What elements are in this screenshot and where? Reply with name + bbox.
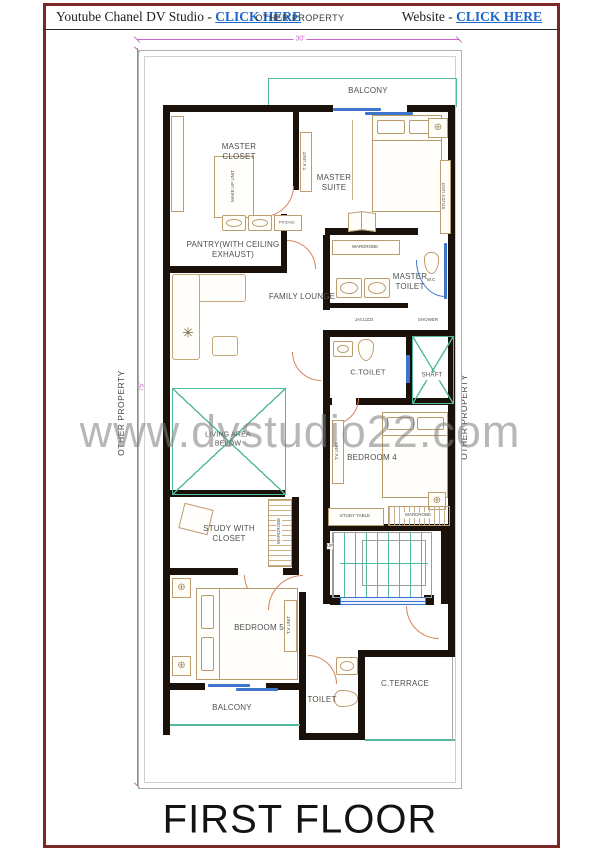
bathroom-sink — [364, 278, 390, 298]
wall — [163, 266, 287, 273]
wall — [323, 398, 332, 405]
closet-counter — [171, 116, 184, 212]
jacuzzi-label: JACUZZI — [355, 317, 374, 323]
wall — [292, 497, 299, 575]
plant-icon: ✳ — [182, 325, 194, 342]
floor-plan-page: Youtube Chanel DV Studio - CLICK HERE OT… — [0, 0, 600, 849]
sheet-title: FIRST FLOOR — [163, 798, 438, 843]
website-line: Website - CLICK HERE — [402, 9, 542, 25]
wall — [293, 112, 299, 190]
wall — [441, 526, 448, 604]
wall — [163, 683, 205, 690]
bathroom-sink — [336, 278, 362, 298]
ceiling-fan-icon: ⊕ — [172, 578, 191, 598]
wall — [330, 303, 408, 308]
wall — [299, 655, 306, 740]
room-label-pantry: PANTRY(WITH CEILING EXHAUST) — [177, 240, 289, 260]
shower-partition — [444, 243, 447, 299]
coffee-table — [212, 336, 238, 356]
youtube-label: Youtube Chanel DV Studio - — [56, 9, 212, 24]
shaft-hatch — [412, 336, 454, 404]
ceiling-fan-icon: ⊕ — [172, 656, 191, 676]
open-book-icon — [361, 211, 376, 232]
other-property-top-label: OTHER PROPERTY — [256, 13, 345, 23]
sliding-door-top — [333, 108, 381, 111]
stair-up-label: UP — [327, 543, 333, 549]
room-label-bedroom5: BEDROOM 5 — [233, 623, 285, 633]
shower-label: SHOWER — [418, 317, 438, 323]
wardrobe-label: WARDROBE — [404, 512, 432, 518]
terrace-edge — [365, 739, 455, 741]
wall — [299, 733, 365, 740]
ceiling-fan-icon: ⊕ — [428, 118, 448, 138]
wall — [358, 650, 455, 657]
top-dimension-value: 30' — [293, 36, 306, 43]
website-label: Website - — [402, 9, 453, 24]
wall — [163, 568, 238, 575]
room-label-master-suite: MASTER SUITE — [308, 173, 360, 193]
sliding-door-bottom — [236, 688, 278, 691]
shaft-window — [406, 355, 410, 383]
pantry-sink — [222, 215, 246, 231]
fridge-label: FRIDGE — [279, 220, 295, 225]
wall — [323, 524, 330, 604]
terrace-side — [452, 657, 453, 741]
wall — [163, 105, 333, 112]
room-label-master-closet: MASTER CLOSET — [210, 142, 268, 162]
room-label-shaft: SHAFT — [421, 372, 444, 380]
room-label-study: STUDY WITH CLOSET — [189, 524, 269, 544]
sliding-door-bottom — [208, 684, 250, 687]
bathroom-sink — [336, 657, 358, 675]
bathroom-sink — [333, 341, 353, 357]
room-label-family-lounge: FAMILY LOUNGE — [269, 292, 335, 302]
wardrobe-label: WARDROBE — [276, 518, 282, 544]
watermark: www.dvstudio22.com — [80, 406, 521, 458]
room-label-toilet: TOILET — [307, 695, 336, 705]
makeup-unit-label: MAKE UP UNIT — [230, 170, 236, 202]
website-click-here-link[interactable]: CLICK HERE — [456, 9, 542, 24]
stair-window — [340, 597, 426, 605]
room-label-c-terrace: C.TERRACE — [381, 679, 429, 689]
balcony-edge — [170, 724, 300, 726]
room-label-balcony-bottom: BALCONY — [212, 703, 252, 713]
wall — [358, 650, 365, 740]
wardrobe-label: WARDROBE — [352, 244, 378, 250]
study-table-label: STUDY TABLE — [340, 513, 370, 519]
pantry-sink — [248, 215, 272, 231]
room-label-c-toilet: C.TOILET — [350, 367, 385, 376]
tv-unit-label: T V UNIT — [302, 152, 308, 171]
stair-mid-line — [340, 563, 428, 564]
wall — [283, 568, 299, 575]
tv-unit-label: T.V UNIT — [286, 616, 292, 634]
header-divider — [43, 29, 560, 30]
sofa — [172, 274, 200, 360]
room-label-balcony-top: BALCONY — [348, 86, 388, 96]
study-unit-label: STUDY UNIT — [441, 183, 447, 210]
